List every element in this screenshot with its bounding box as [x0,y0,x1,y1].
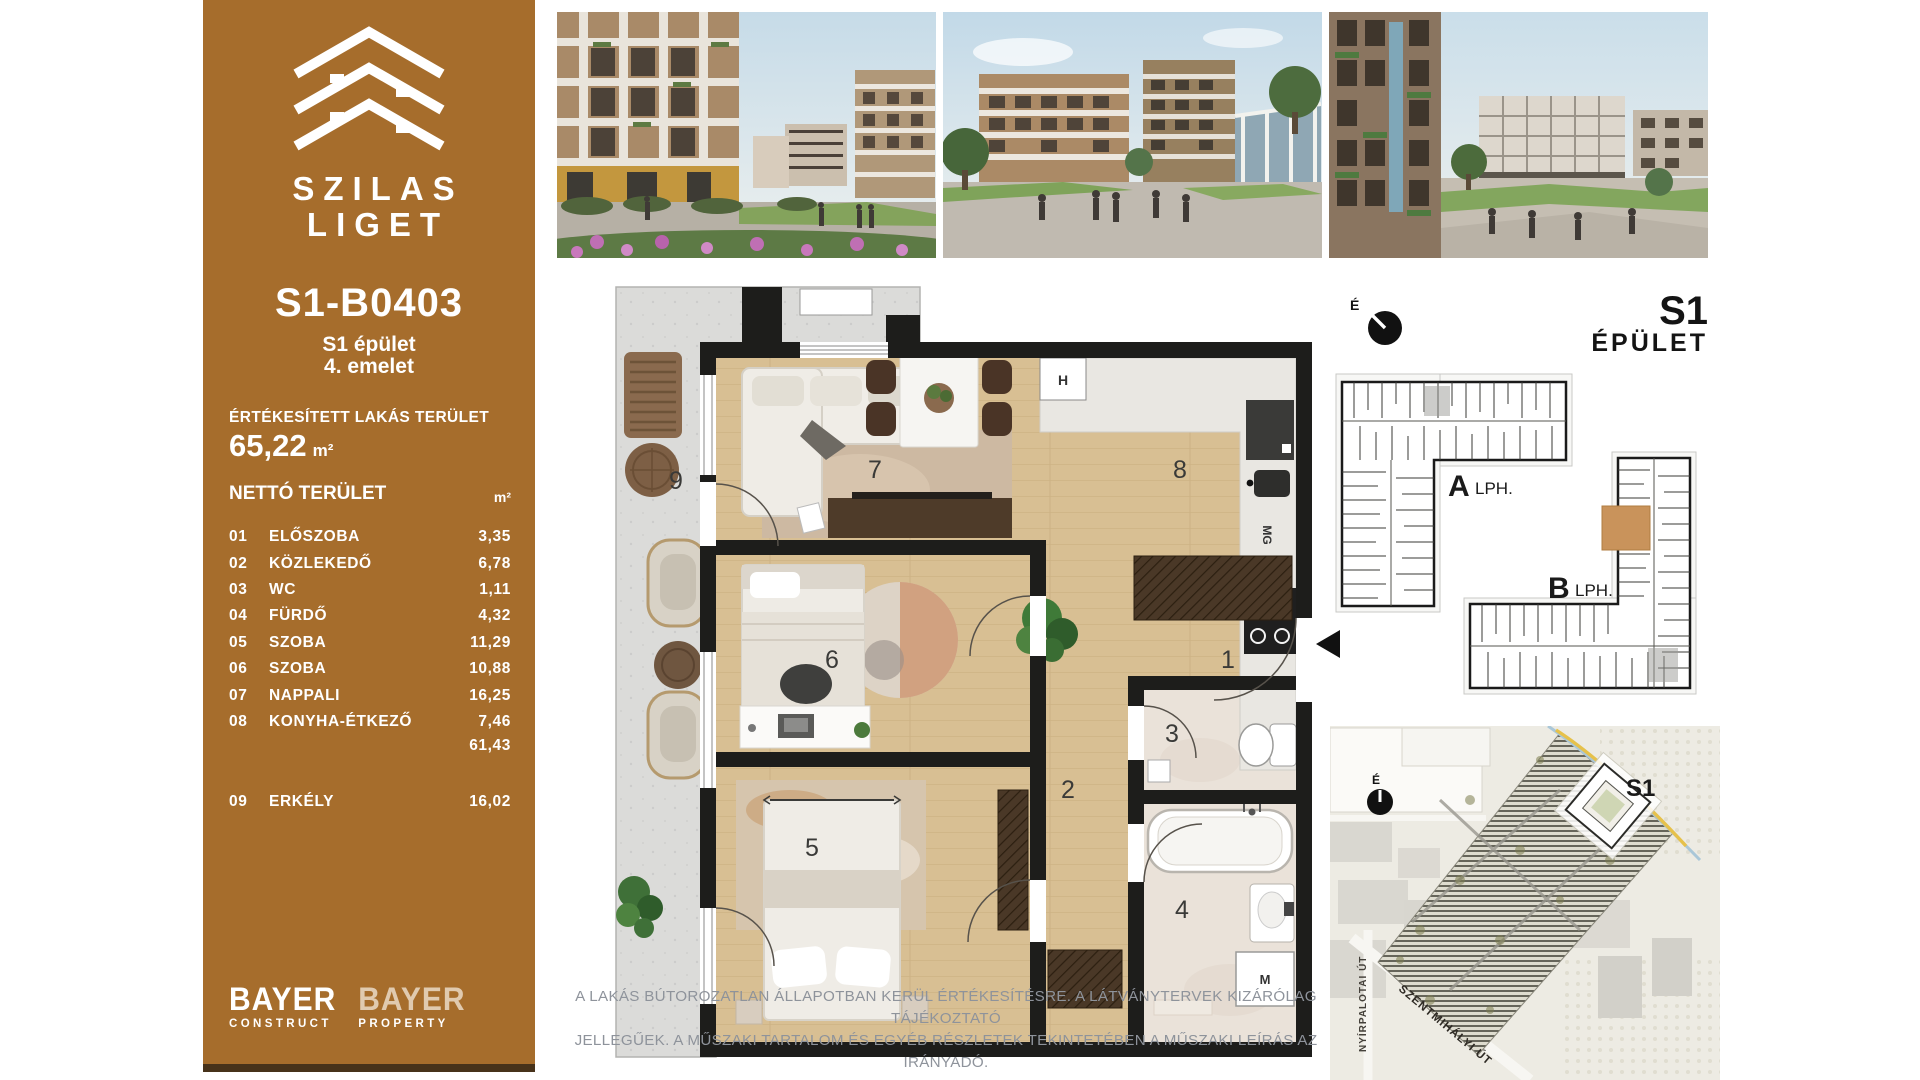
room-area: 16,02 [469,793,511,811]
living-label: 7 [868,456,882,484]
net-area-label: NETTÓ TERÜLET [229,483,386,505]
stair-b-suffix: LPH. [1575,581,1613,600]
table-row: 01ELŐSZOBA3,35 [229,524,511,550]
table-row: 06SZOBA10,88 [229,656,511,682]
room-area: 3,35 [478,528,511,546]
sidebar-panel: SZILAS LIGET S1-B0403 S1 épület 4. emele… [203,0,535,1072]
room-num: 02 [229,555,269,573]
unit-id: S1-B0403 [203,281,535,326]
render-photo-towers [1329,12,1708,258]
balcony-label: 9 [669,467,683,495]
sold-area-unit: m² [313,441,334,460]
sink-icon [1254,470,1290,497]
net-subtotal: 61,43 [229,737,511,755]
net-area-header: NETTÓ TERÜLET m² [229,483,511,505]
room-num: 08 [229,713,269,731]
sold-area-number: 65,22 [229,428,307,463]
site-map: S1 É NYÍRPALOTAI ÚT SZENTMIHÁLYI ÚT [1330,726,1720,1080]
project-name-line2: LIGET [203,206,544,244]
bedroom1-label: 6 [825,646,839,674]
building-name: S1 épület [203,333,535,357]
room-area: 11,29 [470,634,511,652]
north-compass-icon: É [1340,288,1420,360]
table-row: 03WC1,11 [229,577,511,603]
stair-a-suffix: LPH. [1475,479,1513,498]
hood-label: H [1058,372,1068,388]
room-num: 03 [229,581,269,599]
szilas-liget-logo-icon [284,22,454,154]
hall-label: 1 [1221,646,1235,674]
toilet-icon [1270,724,1296,766]
room-area: 7,46 [478,713,511,731]
render-photo-plaza [943,12,1322,258]
room-area: 10,88 [469,660,511,678]
net-area-unit: m² [494,489,511,505]
disclaimer-text: A LAKÁS BÚTOROZATLAN ÁLLAPOTBAN KERÜL ÉR… [556,986,1336,1074]
kitchen-label: 8 [1173,456,1187,484]
disclaimer-line1: A LAKÁS BÚTOROZATLAN ÁLLAPOTBAN KERÜL ÉR… [556,986,1336,1030]
keyplan-building-word: ÉPÜLET [1440,330,1708,356]
room-name: FÜRDŐ [269,607,478,625]
lounge-chair-icon [624,352,682,438]
sitemap-north-label: É [1372,772,1380,787]
street-label-nyirpalotai: NYÍRPALOTAI ÚT [1356,956,1369,1052]
disclaimer-line2: JELLEGŰEK. A MŰSZAKI TARTALOM ÉS EGYÉB R… [556,1030,1336,1074]
room-name: NAPPALI [269,687,469,705]
bath-label: 4 [1175,896,1189,924]
table-row: 05SZOBA11,29 [229,630,511,656]
highlighted-unit [1602,506,1650,550]
stair-b-label: B [1548,572,1570,605]
armchair-icon [648,692,706,778]
room-num: 04 [229,607,269,625]
room-name: KONYHA-ÉTKEZŐ [269,713,478,731]
table-row: 02KÖZLEKEDŐ6,78 [229,550,511,576]
bayer-construct-name: BAYER [229,984,336,1016]
bayer-property-name: BAYER [358,984,465,1016]
project-name-line1: SZILAS [203,170,544,208]
north-label: É [1350,297,1359,313]
sold-area-label: ÉRTÉKESÍTETT LAKÁS TERÜLET [229,409,489,427]
table-row: 08KONYHA-ÉTKEZŐ7,46 [229,709,511,735]
apartment-floorplan: H MG [610,280,1350,1080]
wardrobe-icon [1134,556,1292,620]
room-name: SZOBA [269,634,470,652]
room-num: 05 [229,634,269,652]
room-num: 07 [229,687,269,705]
bedroom2-label: 5 [805,834,819,862]
room-name: KÖZLEKEDŐ [269,555,478,573]
bayer-property-sub: PROPERTY [358,1018,465,1030]
room-name: SZOBA [269,660,469,678]
washer-label: M [1260,972,1271,987]
bayer-construct-logo: BAYER CONSTRUCT [229,984,336,1030]
room-area: 16,25 [469,687,511,705]
room-area: 6,78 [478,555,511,573]
wc-sink-icon [1148,760,1170,782]
keyplan-building-id: S1 [1440,292,1708,330]
sitemap-s1-label: S1 [1626,775,1655,802]
room-area: 1,11 [479,581,511,599]
keyplan-title: S1 ÉPÜLET [1440,292,1708,356]
wc-label: 3 [1165,720,1179,748]
room-name: WC [269,581,479,599]
room-name: ERKÉLY [269,793,469,811]
developer-logos: BAYER CONSTRUCT BAYER PROPERTY [229,984,519,1030]
bayer-construct-sub: CONSTRUCT [229,1018,336,1030]
render-photo-courtyard [557,12,936,258]
table-row: 07NAPPALI16,25 [229,682,511,708]
floor-name: 4. emelet [203,355,535,379]
table-row: 04FÜRDŐ4,32 [229,603,511,629]
room-area: 4,32 [478,607,511,625]
tv-console-icon [828,498,1012,538]
pantry-label: MG [1260,525,1274,544]
balcony-row: 09ERKÉLY16,02 [229,789,511,815]
small-plant-icon [854,722,870,738]
room-name: ELŐSZOBA [269,528,478,546]
stair-a-label: A [1448,470,1470,503]
room-area-table: 01ELŐSZOBA3,35 02KÖZLEKEDŐ6,78 03WC1,11 … [229,524,511,735]
room-num: 06 [229,660,269,678]
room-num: 09 [229,793,269,811]
room-num: 01 [229,528,269,546]
wardrobe-icon [998,790,1028,930]
sold-area-value: 65,22m² [229,428,333,464]
armchair-icon [648,540,706,626]
bayer-property-logo: BAYER PROPERTY [358,984,465,1030]
corridor-label: 2 [1061,776,1075,804]
building-key-plan: A LPH. B LPH. [1330,368,1710,698]
